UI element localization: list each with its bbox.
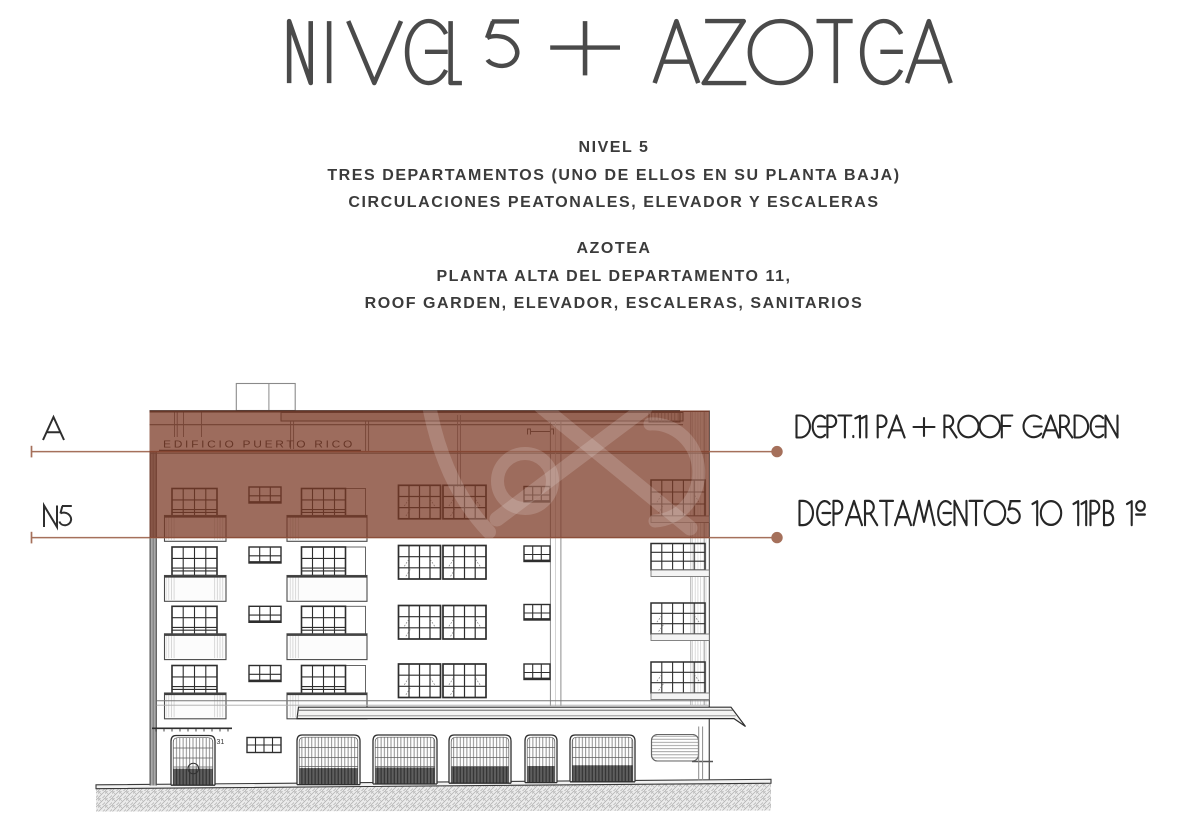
svg-text:31: 31 [217, 739, 225, 746]
